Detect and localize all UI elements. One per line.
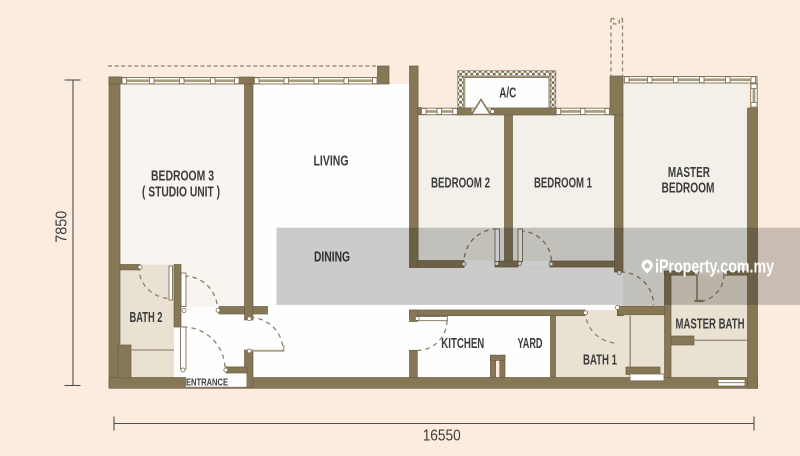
svg-text:MASTER: MASTER xyxy=(668,165,710,181)
svg-text:BEDROOM 3: BEDROOM 3 xyxy=(151,169,214,185)
svg-text:( STUDIO UNIT ): ( STUDIO UNIT ) xyxy=(142,185,220,201)
svg-text:7850: 7850 xyxy=(54,211,71,243)
svg-text:BATH 1: BATH 1 xyxy=(583,353,617,369)
svg-text:MASTER BATH: MASTER BATH xyxy=(676,317,745,333)
svg-text:BEDROOM 1: BEDROOM 1 xyxy=(534,176,592,192)
svg-text:iProperty.com.my: iProperty.com.my xyxy=(655,256,774,276)
svg-text:KITCHEN: KITCHEN xyxy=(441,336,484,352)
svg-text:A/C: A/C xyxy=(499,86,516,102)
svg-text:BEDROOM 2: BEDROOM 2 xyxy=(431,176,490,192)
svg-text:YARD: YARD xyxy=(518,336,543,352)
svg-text:BATH 2: BATH 2 xyxy=(130,310,163,326)
svg-text:ENTRANCE: ENTRANCE xyxy=(186,377,228,389)
svg-text:16550: 16550 xyxy=(423,428,461,445)
svg-text:LIVING: LIVING xyxy=(314,154,349,170)
svg-text:BEDROOM: BEDROOM xyxy=(662,181,715,197)
